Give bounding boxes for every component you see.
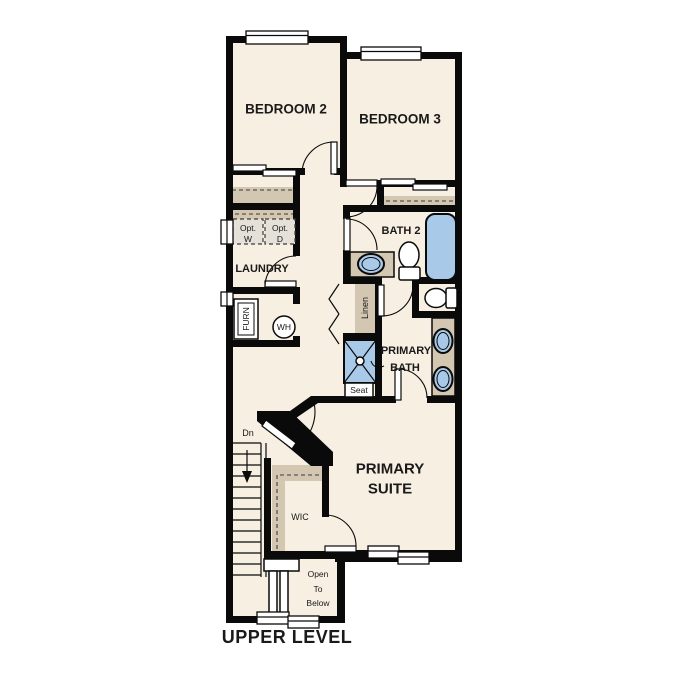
opt-dryer-label-line2: D — [277, 234, 283, 244]
stair-railing-cap — [264, 559, 299, 571]
furnace-label: FURN — [241, 307, 251, 331]
opt-washer-label-line2: W — [244, 234, 252, 244]
bath2-tub — [426, 214, 456, 280]
open-to-below-line3: Below — [306, 598, 330, 608]
wic-shelf-top — [272, 465, 326, 481]
bath2-door — [344, 218, 350, 251]
bedroom-2-window — [246, 31, 308, 44]
primary-wc-toilet-tank — [446, 288, 457, 308]
opt-dryer-label-line1: Opt. — [272, 223, 288, 233]
wic-label: WIC — [291, 512, 309, 522]
wic-door — [325, 546, 356, 552]
open-below-window-left — [257, 612, 289, 624]
primary-shower-drain — [356, 357, 364, 365]
shower-seat-label: Seat — [350, 385, 368, 395]
floor-plan-svg: BEDROOM 2 BEDROOM 3 BATH 2 LAUNDRY PRIMA… — [0, 0, 687, 687]
stairs-dn-label: Dn — [242, 428, 254, 438]
bath2-label: BATH 2 — [382, 225, 421, 237]
primary-suite-floor — [311, 396, 462, 562]
laundry-label: LAUNDRY — [235, 263, 289, 275]
bath2-toilet-tank — [399, 267, 420, 280]
primary-suite-window-right — [398, 552, 429, 564]
bath2-toilet-bowl — [399, 242, 419, 268]
primary-bath-label-line1: PRIMARY — [381, 345, 432, 357]
bedroom-2-closet-slider — [263, 170, 296, 176]
bedroom-2-door — [331, 142, 337, 174]
wic-shelf-left — [272, 481, 285, 553]
primary-wc-toilet-bowl — [425, 289, 447, 308]
bedroom-3-window — [361, 47, 421, 60]
stair-railing-post — [280, 571, 288, 615]
bedroom-3-door — [346, 180, 377, 186]
stair-railing-post — [269, 571, 277, 615]
open-to-below-line1: Open — [308, 569, 329, 579]
opt-washer-label-line1: Opt. — [240, 223, 256, 233]
bedroom-2-closet-slider — [233, 165, 266, 171]
primary-suite-label-line1: PRIMARY — [356, 461, 425, 478]
water-closet-door — [378, 285, 384, 316]
primary-suite-window-left — [368, 546, 399, 558]
bedroom-2-label: BEDROOM 2 — [245, 102, 327, 117]
floor-plan-page: BEDROOM 2 BEDROOM 3 BATH 2 LAUNDRY PRIMA… — [0, 0, 687, 687]
water-heater-label: WH — [277, 322, 291, 332]
bedroom-3-closet-slider — [413, 184, 447, 190]
linen-label: Linen — [360, 297, 370, 319]
bedroom-3-label: BEDROOM 3 — [359, 112, 441, 127]
plan-title: UPPER LEVEL — [222, 627, 353, 647]
laundry-door — [265, 281, 296, 287]
primary-bath-label-line2: BATH — [390, 362, 420, 374]
bedroom-3-closet-slider — [381, 179, 415, 185]
open-to-below-line2: To — [314, 584, 323, 594]
primary-suite-label-line2: SUITE — [368, 481, 412, 498]
